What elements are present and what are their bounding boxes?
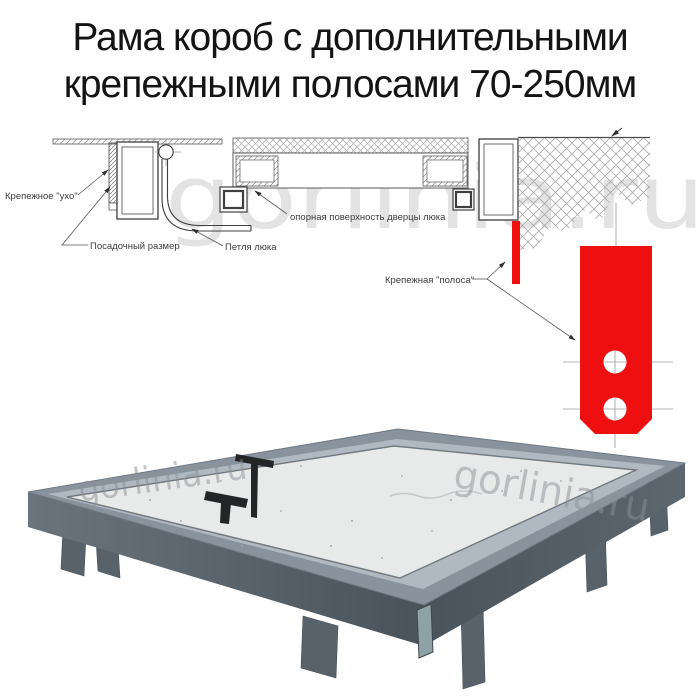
frame-profile-right	[479, 139, 518, 220]
label-support-surface: опорная поверхность дверцы люка	[290, 212, 446, 223]
mounting-strip-small	[512, 221, 520, 284]
frame-corner-profile-end	[417, 604, 433, 658]
hinge-pivot	[159, 145, 173, 159]
label-hinge: Петля люка	[225, 242, 277, 253]
frame-profile-left	[117, 142, 158, 219]
mounting-ear	[109, 143, 117, 210]
illustration-canvas: gorlinia.ru	[0, 0, 700, 700]
product-card: Рама короб с дополнительными крепежными …	[0, 0, 700, 700]
leg	[301, 616, 338, 678]
technical-drawing: gorlinia.ru	[5, 128, 700, 448]
label-mounting-strip: Крепежная "полоса"	[385, 275, 474, 286]
label-seat-size: Посадочный размер	[90, 241, 180, 252]
product-photo: gorlinia.ru gorlinia.ru	[28, 429, 685, 689]
label-mounting-ear: Крепежное "ухо"	[5, 191, 78, 202]
ceiling-arrow-icon	[612, 128, 622, 136]
